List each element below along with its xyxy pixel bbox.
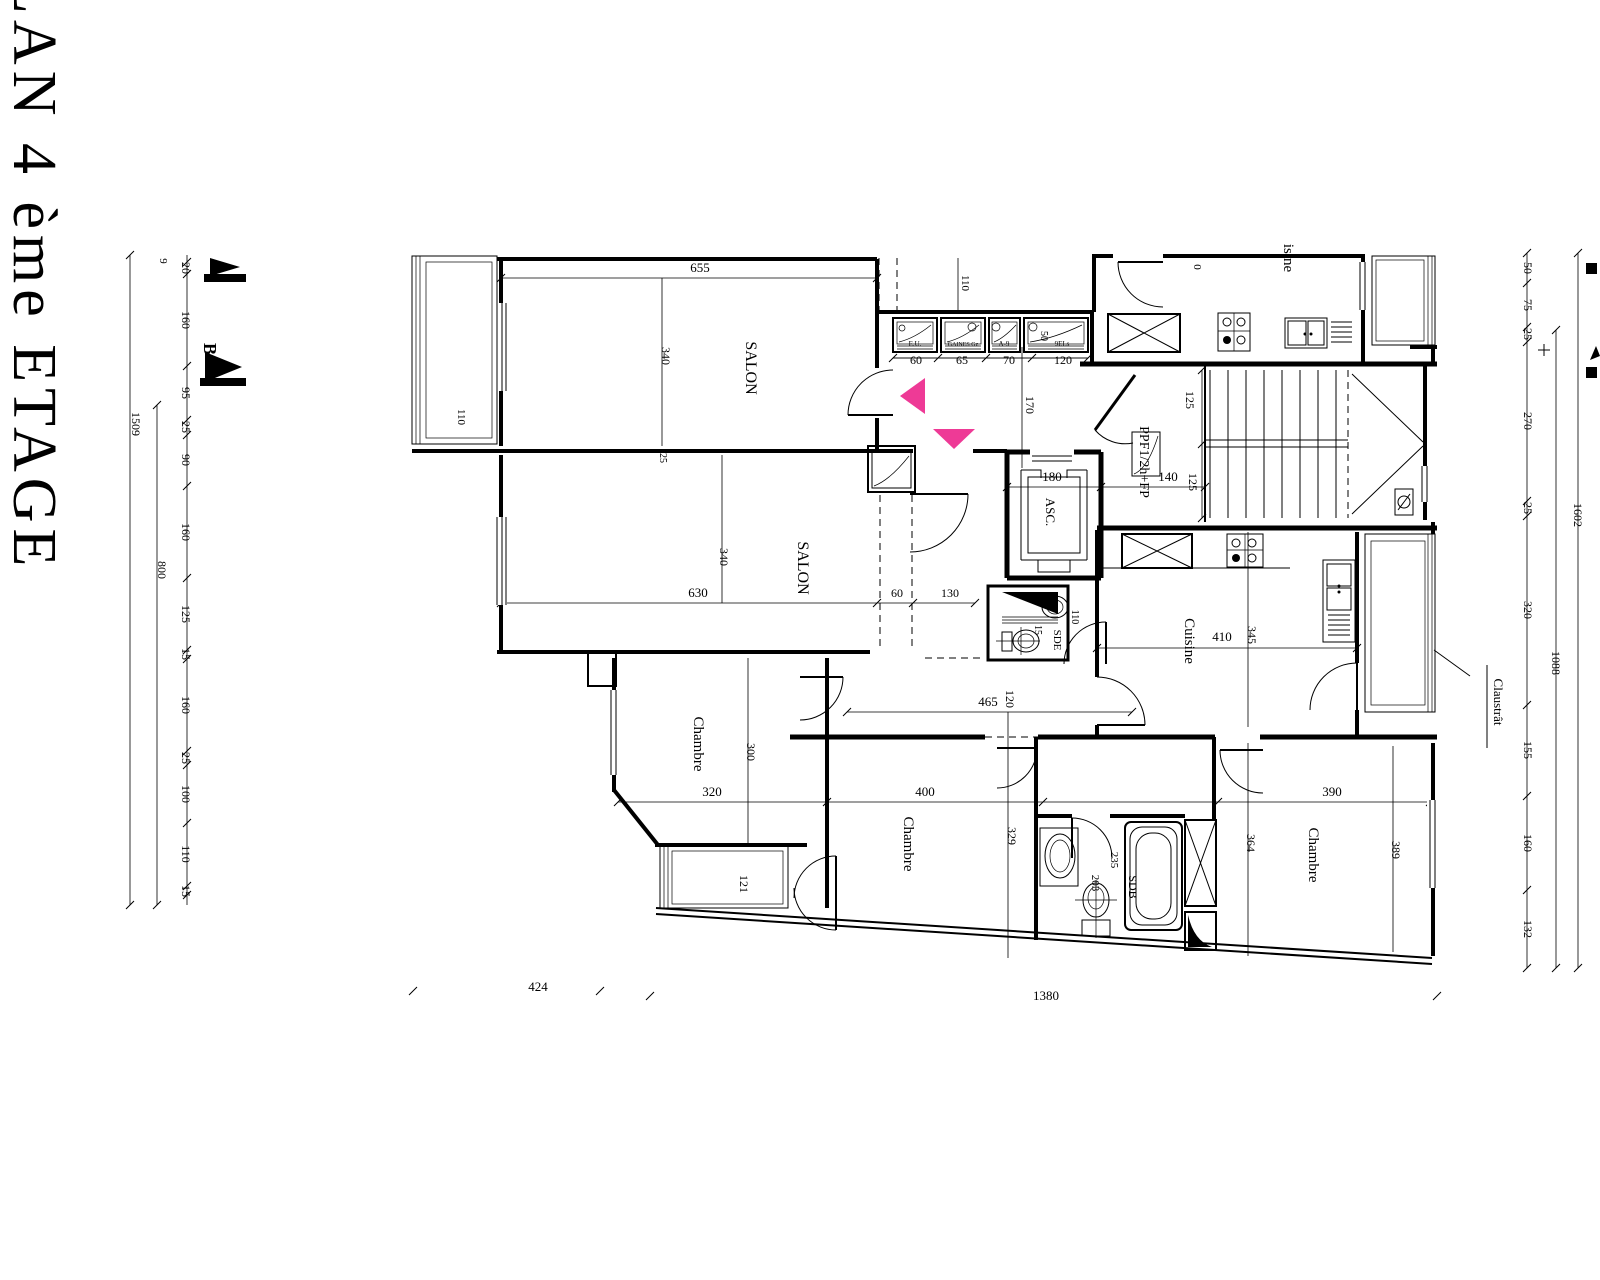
dim-15-sde: 15 xyxy=(1032,625,1043,635)
dim-170: 170 xyxy=(1023,396,1037,414)
chain-total-800: 800 xyxy=(155,561,169,579)
dim-110-balcony: 110 xyxy=(455,409,467,426)
balcony-bottom xyxy=(660,845,788,908)
dim-180-asc: 180 xyxy=(1042,469,1062,484)
chain-r-25b: 25 xyxy=(1521,502,1535,514)
plan-title: PLAN 4 ème ETAGE xyxy=(0,0,68,572)
chain-r-155: 155 xyxy=(1521,741,1535,759)
chain-total-1509: 1509 xyxy=(129,412,143,436)
chain-r-160: 160 xyxy=(1521,834,1535,852)
dim-110-top: 110 xyxy=(959,275,971,292)
dim-110-sde: 110 xyxy=(1069,610,1080,625)
dim-235: 235 xyxy=(1108,852,1120,869)
dashed-lines xyxy=(879,258,1038,737)
dim-130: 130 xyxy=(941,586,959,600)
chain-r-75: 75 xyxy=(1521,299,1535,311)
room-salon-1: SALON xyxy=(742,341,759,395)
section-marker-right-symbol xyxy=(1538,263,1600,378)
chain-l-100: 100 xyxy=(179,785,193,803)
dim-630: 630 xyxy=(688,585,708,600)
highlight-arrows xyxy=(900,378,975,449)
dim-329: 329 xyxy=(1005,827,1019,845)
target-arrow-left xyxy=(900,378,925,414)
duct-label-2: GAINES Gz xyxy=(948,342,979,348)
balcony-right xyxy=(1365,534,1487,748)
section-marker-b-symbol xyxy=(200,258,246,386)
chain-l-90: 90 xyxy=(179,454,193,466)
chain-l-95: 95 xyxy=(179,387,193,399)
dim-340-salon1: 340 xyxy=(659,347,673,365)
room-sde: SDE xyxy=(1051,630,1063,651)
label-ppf: PPF1/2h+FP xyxy=(1136,426,1151,498)
dim-duct-120: 120 xyxy=(1054,353,1072,367)
room-chambre-3: Chambre xyxy=(1305,828,1321,883)
chain-l-15b: 15 xyxy=(179,885,193,897)
dim-389: 389 xyxy=(1389,841,1403,859)
stairs xyxy=(1205,370,1423,518)
dim-120-hall: 120 xyxy=(1003,690,1017,708)
room-cuisine: Cuisine xyxy=(1181,618,1197,664)
room-chambre-2: Chambre xyxy=(900,817,916,872)
chain-r-50: 50 xyxy=(1521,262,1535,274)
section-marker-b: B xyxy=(200,343,220,355)
corner-hatch xyxy=(1188,915,1212,947)
dim-410: 410 xyxy=(1212,629,1232,644)
chain-l-160b: 160 xyxy=(179,523,193,541)
duct-label-4: 9ELs xyxy=(1055,340,1070,348)
balcony-top-right xyxy=(1372,256,1435,345)
chain-l-110: 110 xyxy=(179,845,193,863)
balcony-top-left xyxy=(412,256,497,444)
dim-300: 300 xyxy=(744,743,758,761)
dim-1380: 1380 xyxy=(1033,988,1059,1003)
dim-duct-60: 60 xyxy=(910,353,922,367)
labels-layer: PLAN 4 ème ETAGE15098009B201609525901601… xyxy=(0,0,1585,1003)
chain-l-20: 20 xyxy=(179,262,193,274)
dim-60: 60 xyxy=(891,586,903,600)
dim-345: 345 xyxy=(1245,626,1259,644)
chain-total-1602: 1602 xyxy=(1571,503,1585,527)
label-asc: ASC. xyxy=(1043,498,1058,527)
chain-r-270: 270 xyxy=(1521,412,1535,430)
dim-125-b: 125 xyxy=(1186,473,1200,491)
room-cuisine-clipped: isine xyxy=(1280,244,1296,273)
dim-424: 424 xyxy=(528,979,548,994)
chain-l-15a: 15 xyxy=(179,648,193,660)
chain-l-160c: 160 xyxy=(179,696,193,714)
dim-390: 390 xyxy=(1322,784,1342,799)
dim-655: 655 xyxy=(690,260,710,275)
sdb-fixtures xyxy=(1040,822,1182,938)
duct-label-3: A-9 xyxy=(999,340,1010,348)
dim-duct-65: 65 xyxy=(956,353,968,367)
dim-121-balcony: 121 xyxy=(737,875,751,893)
floor-plan-canvas: PLAN 4 ème ETAGE15098009B201609525901601… xyxy=(0,0,1600,1280)
chain-partial-9: 9 xyxy=(157,258,169,264)
chain-r-320: 320 xyxy=(1521,601,1535,619)
dim-364: 364 xyxy=(1244,834,1258,852)
dim-125-a: 125 xyxy=(1183,391,1197,409)
chain-l-160a: 160 xyxy=(179,311,193,329)
chain-total-1088: 1088 xyxy=(1549,651,1563,675)
claustra-leader xyxy=(1434,650,1487,748)
dim-duct-70: 70 xyxy=(1003,353,1015,367)
dim-140: 140 xyxy=(1158,469,1178,484)
floor-plan-page: PLAN 4 ème ETAGE15098009B201609525901601… xyxy=(0,0,1600,1280)
chain-l-25a: 25 xyxy=(179,421,193,433)
dim-203: 203 xyxy=(1089,875,1101,892)
chain-l-125: 125 xyxy=(179,605,193,623)
dim-400: 400 xyxy=(915,784,935,799)
room-salon-2: SALON xyxy=(794,541,811,595)
dim-0-partial: 0 xyxy=(1191,264,1203,270)
duct-boxes xyxy=(893,318,1088,358)
dim-25-wall: 25 xyxy=(657,453,668,463)
dim-465: 465 xyxy=(978,694,998,709)
room-sdb: SDB xyxy=(1126,875,1140,898)
label-claustra: Claustrât xyxy=(1491,679,1506,726)
chain-r-25a: 25 xyxy=(1521,328,1535,340)
dim-320-ch1: 320 xyxy=(702,784,722,799)
kitchen-fixtures-upper xyxy=(1218,313,1352,351)
target-arrow-down xyxy=(933,429,975,449)
walls xyxy=(412,256,1437,964)
room-chambre-1: Chambre xyxy=(690,717,706,772)
chain-r-132: 132 xyxy=(1521,920,1535,938)
duct-label-1: E.U. xyxy=(909,340,922,348)
chain-l-25b: 25 xyxy=(179,752,193,764)
dim-50-duct: 50 xyxy=(1038,331,1049,341)
dim-340-salon2: 340 xyxy=(717,548,731,566)
